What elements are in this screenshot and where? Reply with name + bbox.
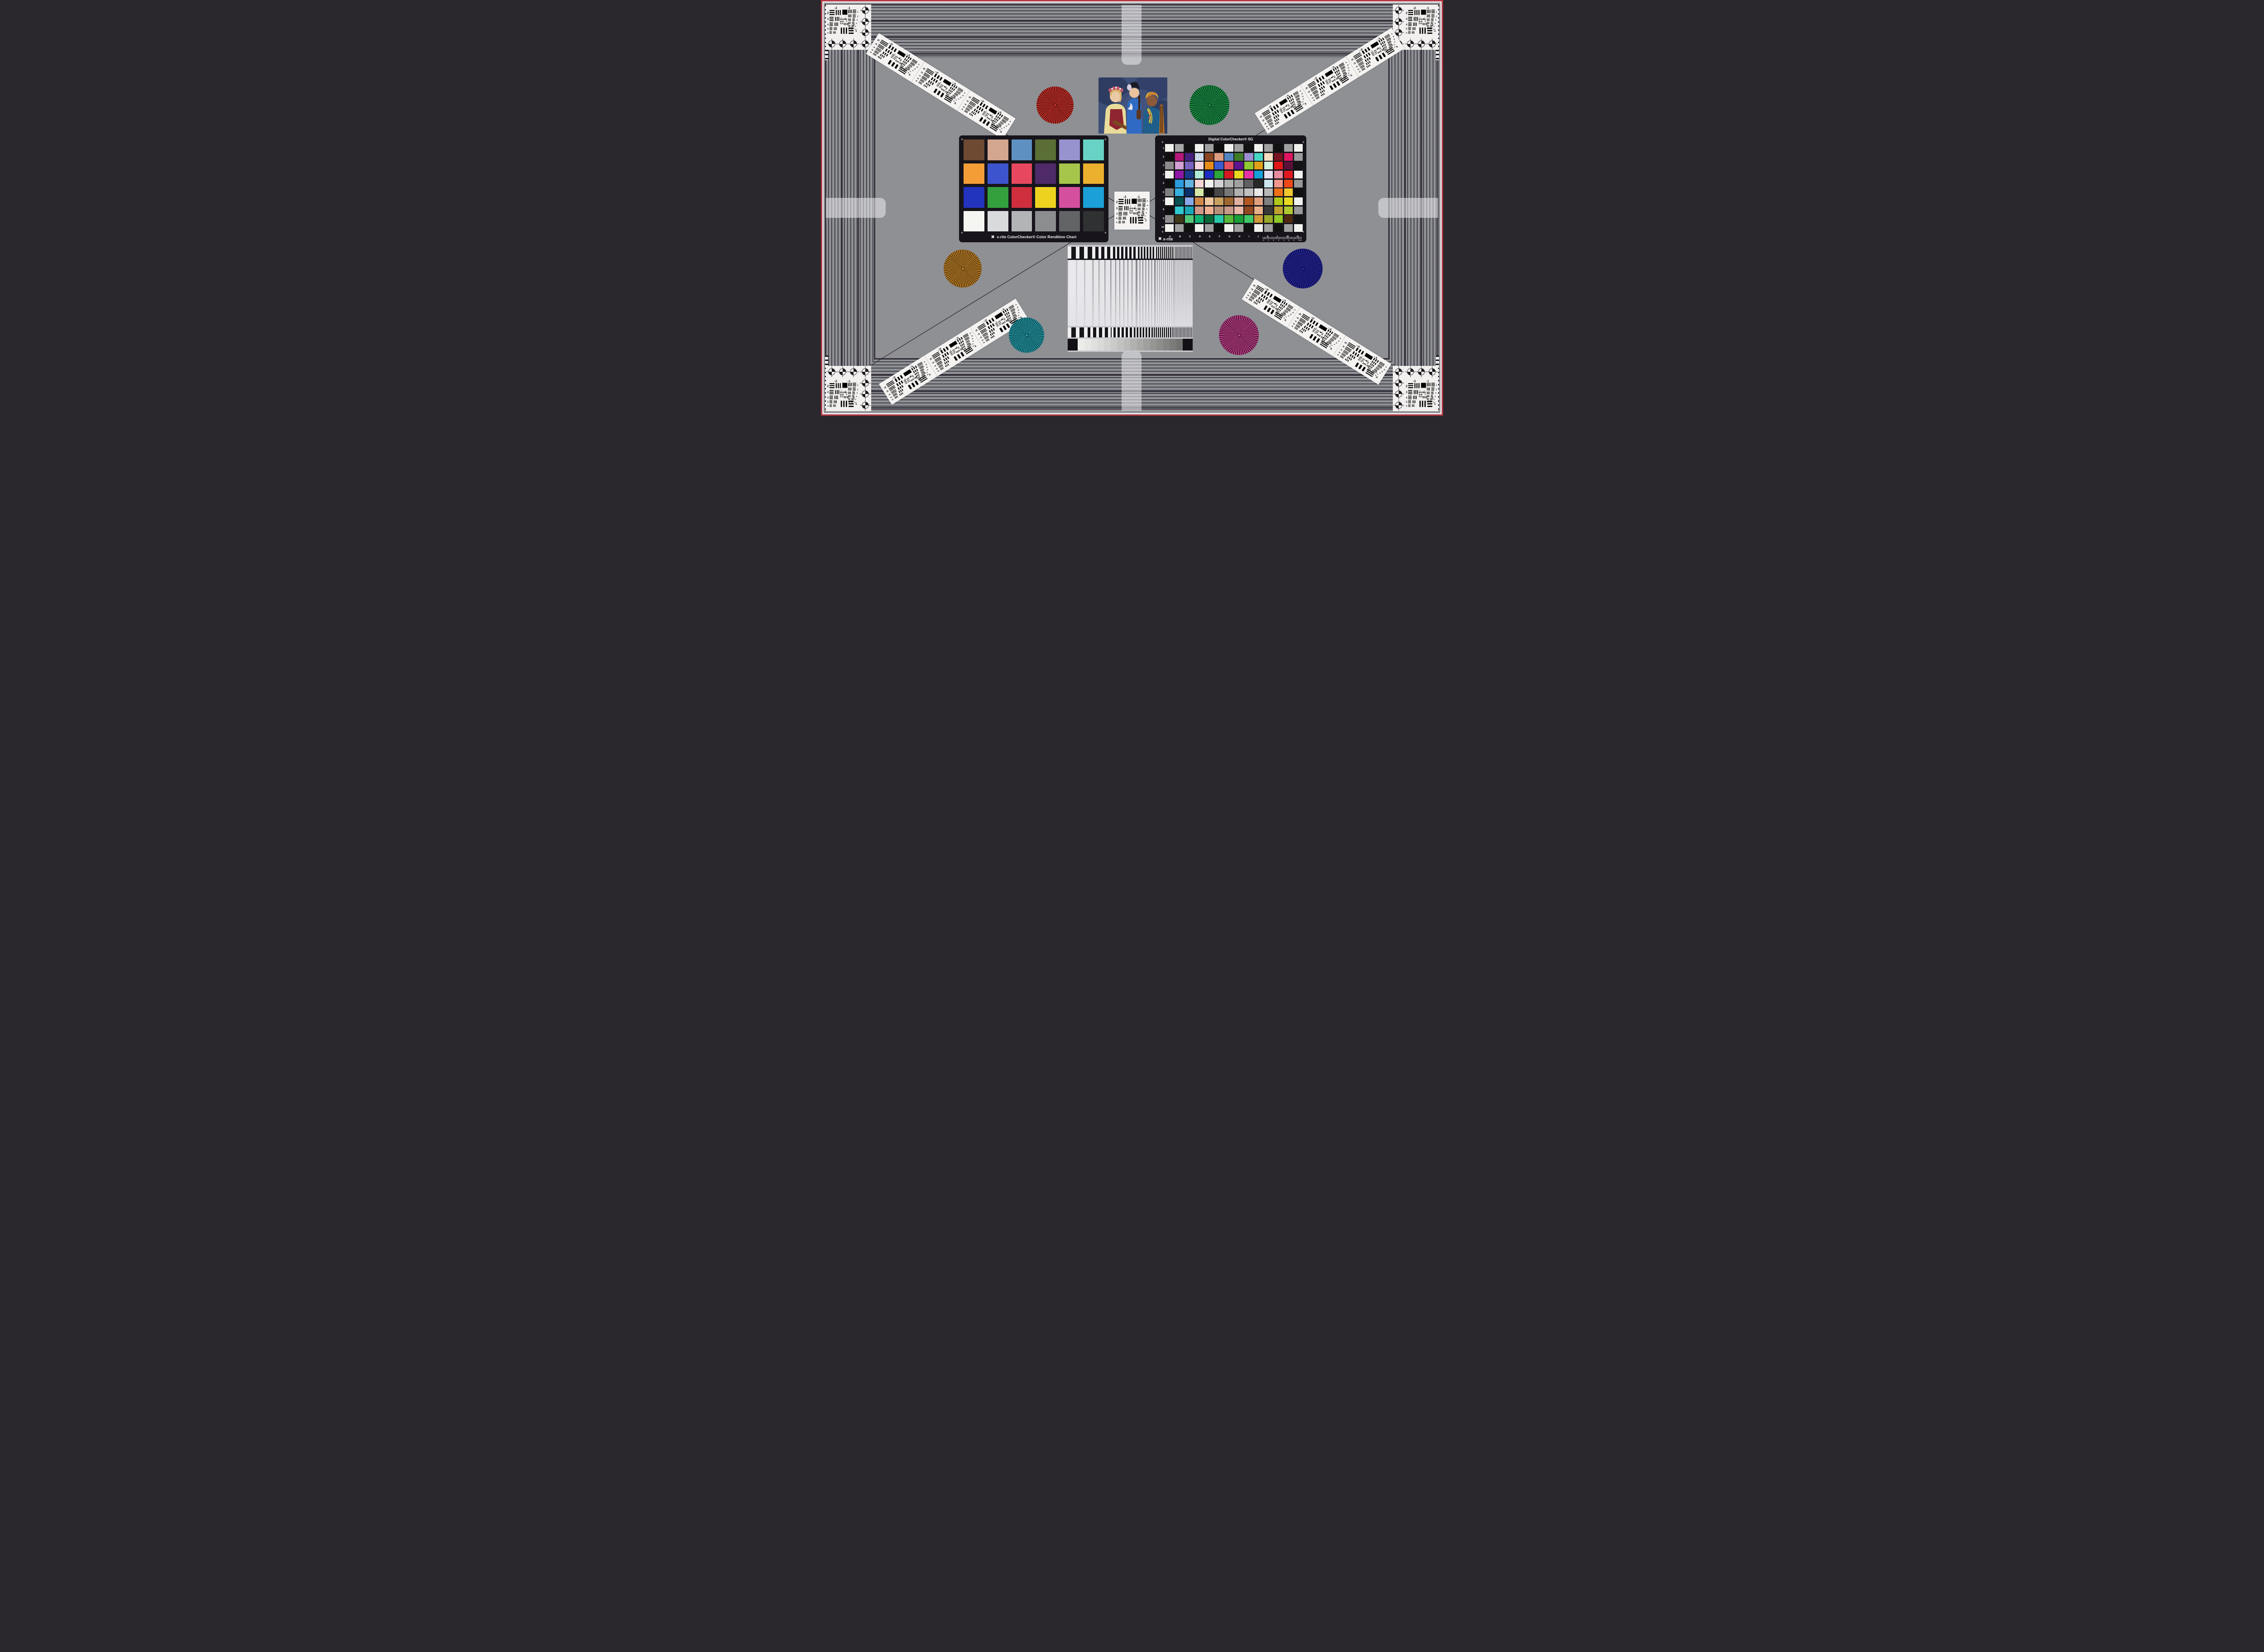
center-resolution-target	[1114, 192, 1150, 230]
left-edge-marker	[826, 198, 886, 218]
colorchecker-caption: ✖ x-rite ColorChecker® Color Rendition C…	[959, 233, 1108, 240]
colorchecker-caption-text: x-rite ColorChecker® Color Rendition Cha…	[997, 235, 1076, 239]
portrait-photo	[1098, 77, 1167, 134]
colorchecker-classic-chart: + + + + ✖ x-rite ColorChecker® Color Ren…	[959, 135, 1108, 242]
test-chart: -2 -1 2 3 4 5 6	[821, 0, 1443, 416]
sg-brand: ✖ x-rite	[1158, 236, 1173, 241]
sweep-field	[1068, 260, 1193, 326]
colorchecker-sg-chart: + + + + Digital ColorChecker® SG 123 456…	[1155, 135, 1306, 242]
right-edge-marker	[1378, 198, 1438, 218]
siemens-star-red	[1036, 86, 1074, 124]
sg-row-labels: 123 456 789 10	[1157, 144, 1164, 232]
xrite-logo-icon: ✖	[991, 235, 995, 240]
sg-patch-grid	[1165, 144, 1303, 232]
sweep-bar-bottom	[1068, 327, 1193, 337]
xrite-logo-icon: ✖	[1158, 236, 1162, 241]
corner-fiducial-bottom-right	[1393, 366, 1438, 411]
frequency-sweep-chart	[1068, 245, 1193, 352]
sweep-bar-top	[1068, 247, 1193, 259]
siemens-star-orange	[944, 250, 982, 288]
siemens-star-teal	[1009, 317, 1044, 353]
sg-mm-ruler: 01 23 45 6mm	[1263, 237, 1302, 241]
corner-fiducial-bottom-left	[826, 366, 871, 411]
gray-step-wedge	[1068, 339, 1193, 351]
sg-title: Digital ColorChecker® SG	[1155, 137, 1306, 141]
top-edge-marker	[1122, 5, 1142, 65]
colorchecker-patch-grid	[964, 139, 1104, 231]
siemens-star-navy	[1283, 249, 1323, 288]
bottom-edge-marker	[1122, 351, 1142, 411]
siemens-star-green	[1190, 85, 1229, 125]
corner-fiducial-top-left	[826, 5, 871, 50]
siemens-star-magenta	[1219, 315, 1259, 355]
